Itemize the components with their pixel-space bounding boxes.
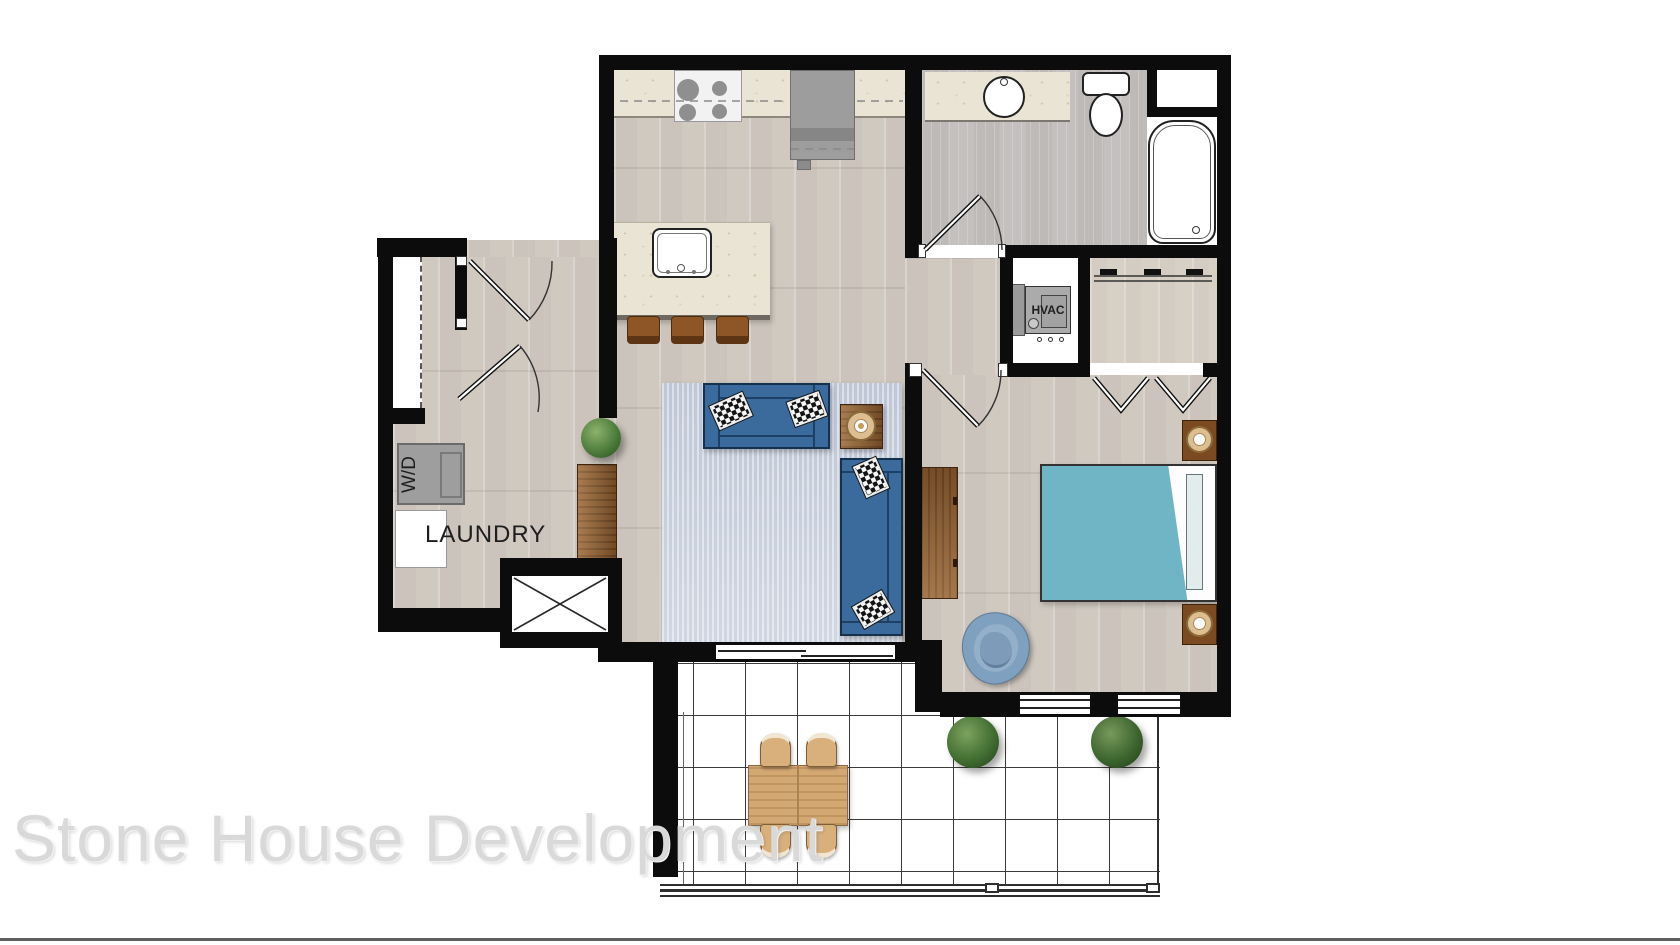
wall-laundry-bottom — [378, 608, 510, 632]
balcony-railing-line — [660, 884, 1160, 886]
nightstand-lamp-ring — [1193, 617, 1206, 630]
floor-entry-doorway-patch — [467, 240, 599, 257]
kitchen-sink-knob — [666, 270, 670, 274]
bar-stool — [627, 316, 660, 344]
nightstand-lamp-ring — [1193, 433, 1206, 446]
door-jamb — [998, 363, 1008, 377]
bottom-rule — [0, 938, 1680, 941]
patio-slider-opening — [716, 645, 895, 659]
refrigerator-band — [791, 128, 854, 141]
watermark-text: Stone House Development — [12, 801, 824, 875]
washer-dryer-label: W/D — [399, 447, 425, 503]
wall-kitchen-bath-divider — [905, 55, 922, 245]
linen-niche — [1157, 70, 1217, 107]
kitchen-faucet — [677, 264, 685, 272]
hvac-unit-dial — [1028, 318, 1039, 329]
stove-burner — [677, 79, 699, 101]
wall-entry-living-divider — [599, 238, 617, 418]
kitchen-counter — [614, 70, 905, 118]
sofa-seat-line — [719, 435, 814, 437]
shaft-x-box — [512, 576, 608, 632]
door-jamb — [998, 244, 1006, 258]
floor-hallway — [905, 258, 1000, 377]
bedroom-window-opening — [1020, 695, 1090, 714]
bar-stool — [716, 316, 749, 344]
stove-burner — [712, 104, 727, 119]
kitchen-sink-knob — [692, 270, 696, 274]
table-lamp-center — [858, 423, 864, 429]
wall-niche-left-stub — [1147, 70, 1157, 117]
patio-shrub — [1091, 716, 1143, 768]
laundry-label: LAUNDRY — [425, 521, 546, 549]
potted-plant-living — [581, 418, 621, 458]
bath-door-opening — [925, 245, 1000, 258]
refrigerator — [790, 70, 855, 160]
dresser-handle — [953, 559, 957, 567]
wall-hvac-right — [1078, 257, 1090, 365]
bed-pillow — [1186, 474, 1203, 590]
entry-closet — [393, 256, 422, 408]
bedroom-window-opening — [1118, 695, 1180, 714]
console-table-wood — [577, 464, 617, 572]
swivel-armchair-seat — [980, 632, 1012, 668]
patio-chair — [806, 733, 837, 767]
wall-closet-right-stub — [1203, 363, 1217, 377]
dresser-handle — [953, 497, 957, 505]
wd-label-text: W/D — [399, 457, 420, 494]
bathtub-inner — [1153, 125, 1211, 239]
stove-burner — [712, 81, 727, 96]
door-jamb — [909, 363, 922, 377]
bathtub-drain — [1192, 226, 1200, 234]
balcony-railing-line — [660, 895, 1160, 897]
wall-kitchen-left — [599, 55, 614, 245]
stove-burner — [679, 104, 696, 121]
patio-chair — [760, 733, 791, 767]
patio-right-edge-line — [1157, 717, 1159, 884]
patio-shrub — [947, 716, 999, 768]
laundry-label-text: LAUNDRY — [425, 521, 546, 548]
wall-bedroom-step — [915, 640, 942, 712]
wall-living-bedroom-divider — [905, 363, 922, 647]
bar-stool — [671, 316, 704, 344]
wall-left — [378, 238, 393, 632]
wall-niche-bottom — [1157, 107, 1217, 117]
wall-hvac-closet-bottom — [1000, 363, 1090, 377]
vanity-faucet — [1000, 78, 1008, 86]
hvac-label-text: HVAC — [1031, 303, 1064, 317]
floor-plan-canvas: HVAC W/D LAUNDRY — [0, 0, 1680, 945]
balcony-railing-line — [660, 889, 1160, 892]
railing-post — [1146, 883, 1160, 893]
console-table — [577, 464, 617, 572]
floor-bedroom-closet — [1090, 257, 1217, 363]
toilet-bowl — [1089, 93, 1123, 137]
wall-hvac-left — [1000, 257, 1013, 377]
door-jamb — [456, 318, 467, 328]
wall-closet-stub — [393, 408, 425, 424]
refrigerator-handle — [797, 160, 811, 170]
hvac-vent-dot — [1059, 337, 1064, 342]
washer-dryer-door — [440, 452, 462, 498]
wall-right — [1217, 55, 1231, 717]
door-jamb — [918, 244, 926, 258]
watermark: Stone House Development — [12, 800, 824, 876]
railing-post — [985, 883, 999, 893]
hvac-vent-dot — [1048, 337, 1053, 342]
hvac-label: HVAC — [1023, 303, 1073, 317]
dresser — [920, 467, 958, 599]
door-jamb — [456, 256, 467, 266]
hvac-vent-dot — [1037, 337, 1042, 342]
